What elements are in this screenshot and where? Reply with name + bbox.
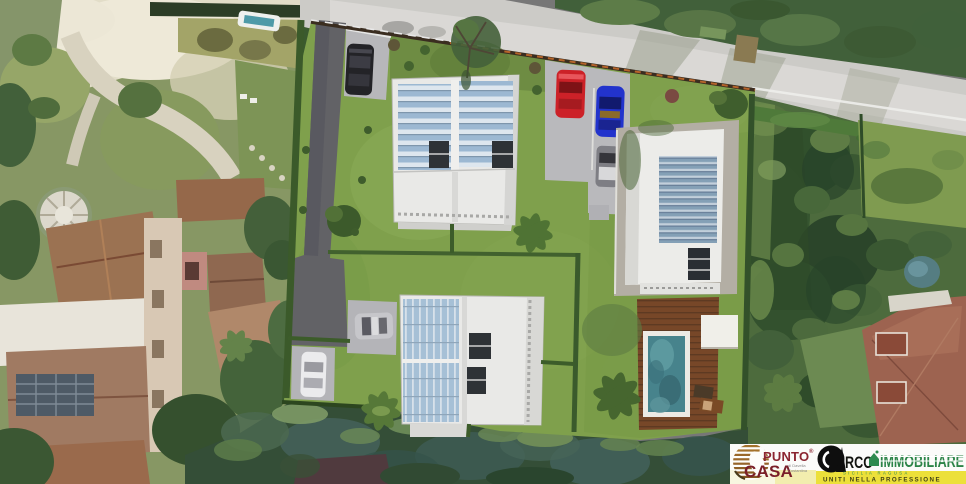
svg-text:SICILIA RAGUSA: SICILIA RAGUSA (843, 471, 910, 476)
svg-text:Costantina: Costantina (788, 468, 808, 473)
svg-text:CASA: CASA (744, 462, 793, 481)
svg-text:IMMOBILIARE: IMMOBILIARE (880, 453, 964, 471)
svg-text:UNITI NELLA PROFESSIONE: UNITI NELLA PROFESSIONE (823, 477, 941, 484)
svg-text:®: ® (809, 448, 814, 455)
svg-text:RCO: RCO (845, 453, 873, 472)
